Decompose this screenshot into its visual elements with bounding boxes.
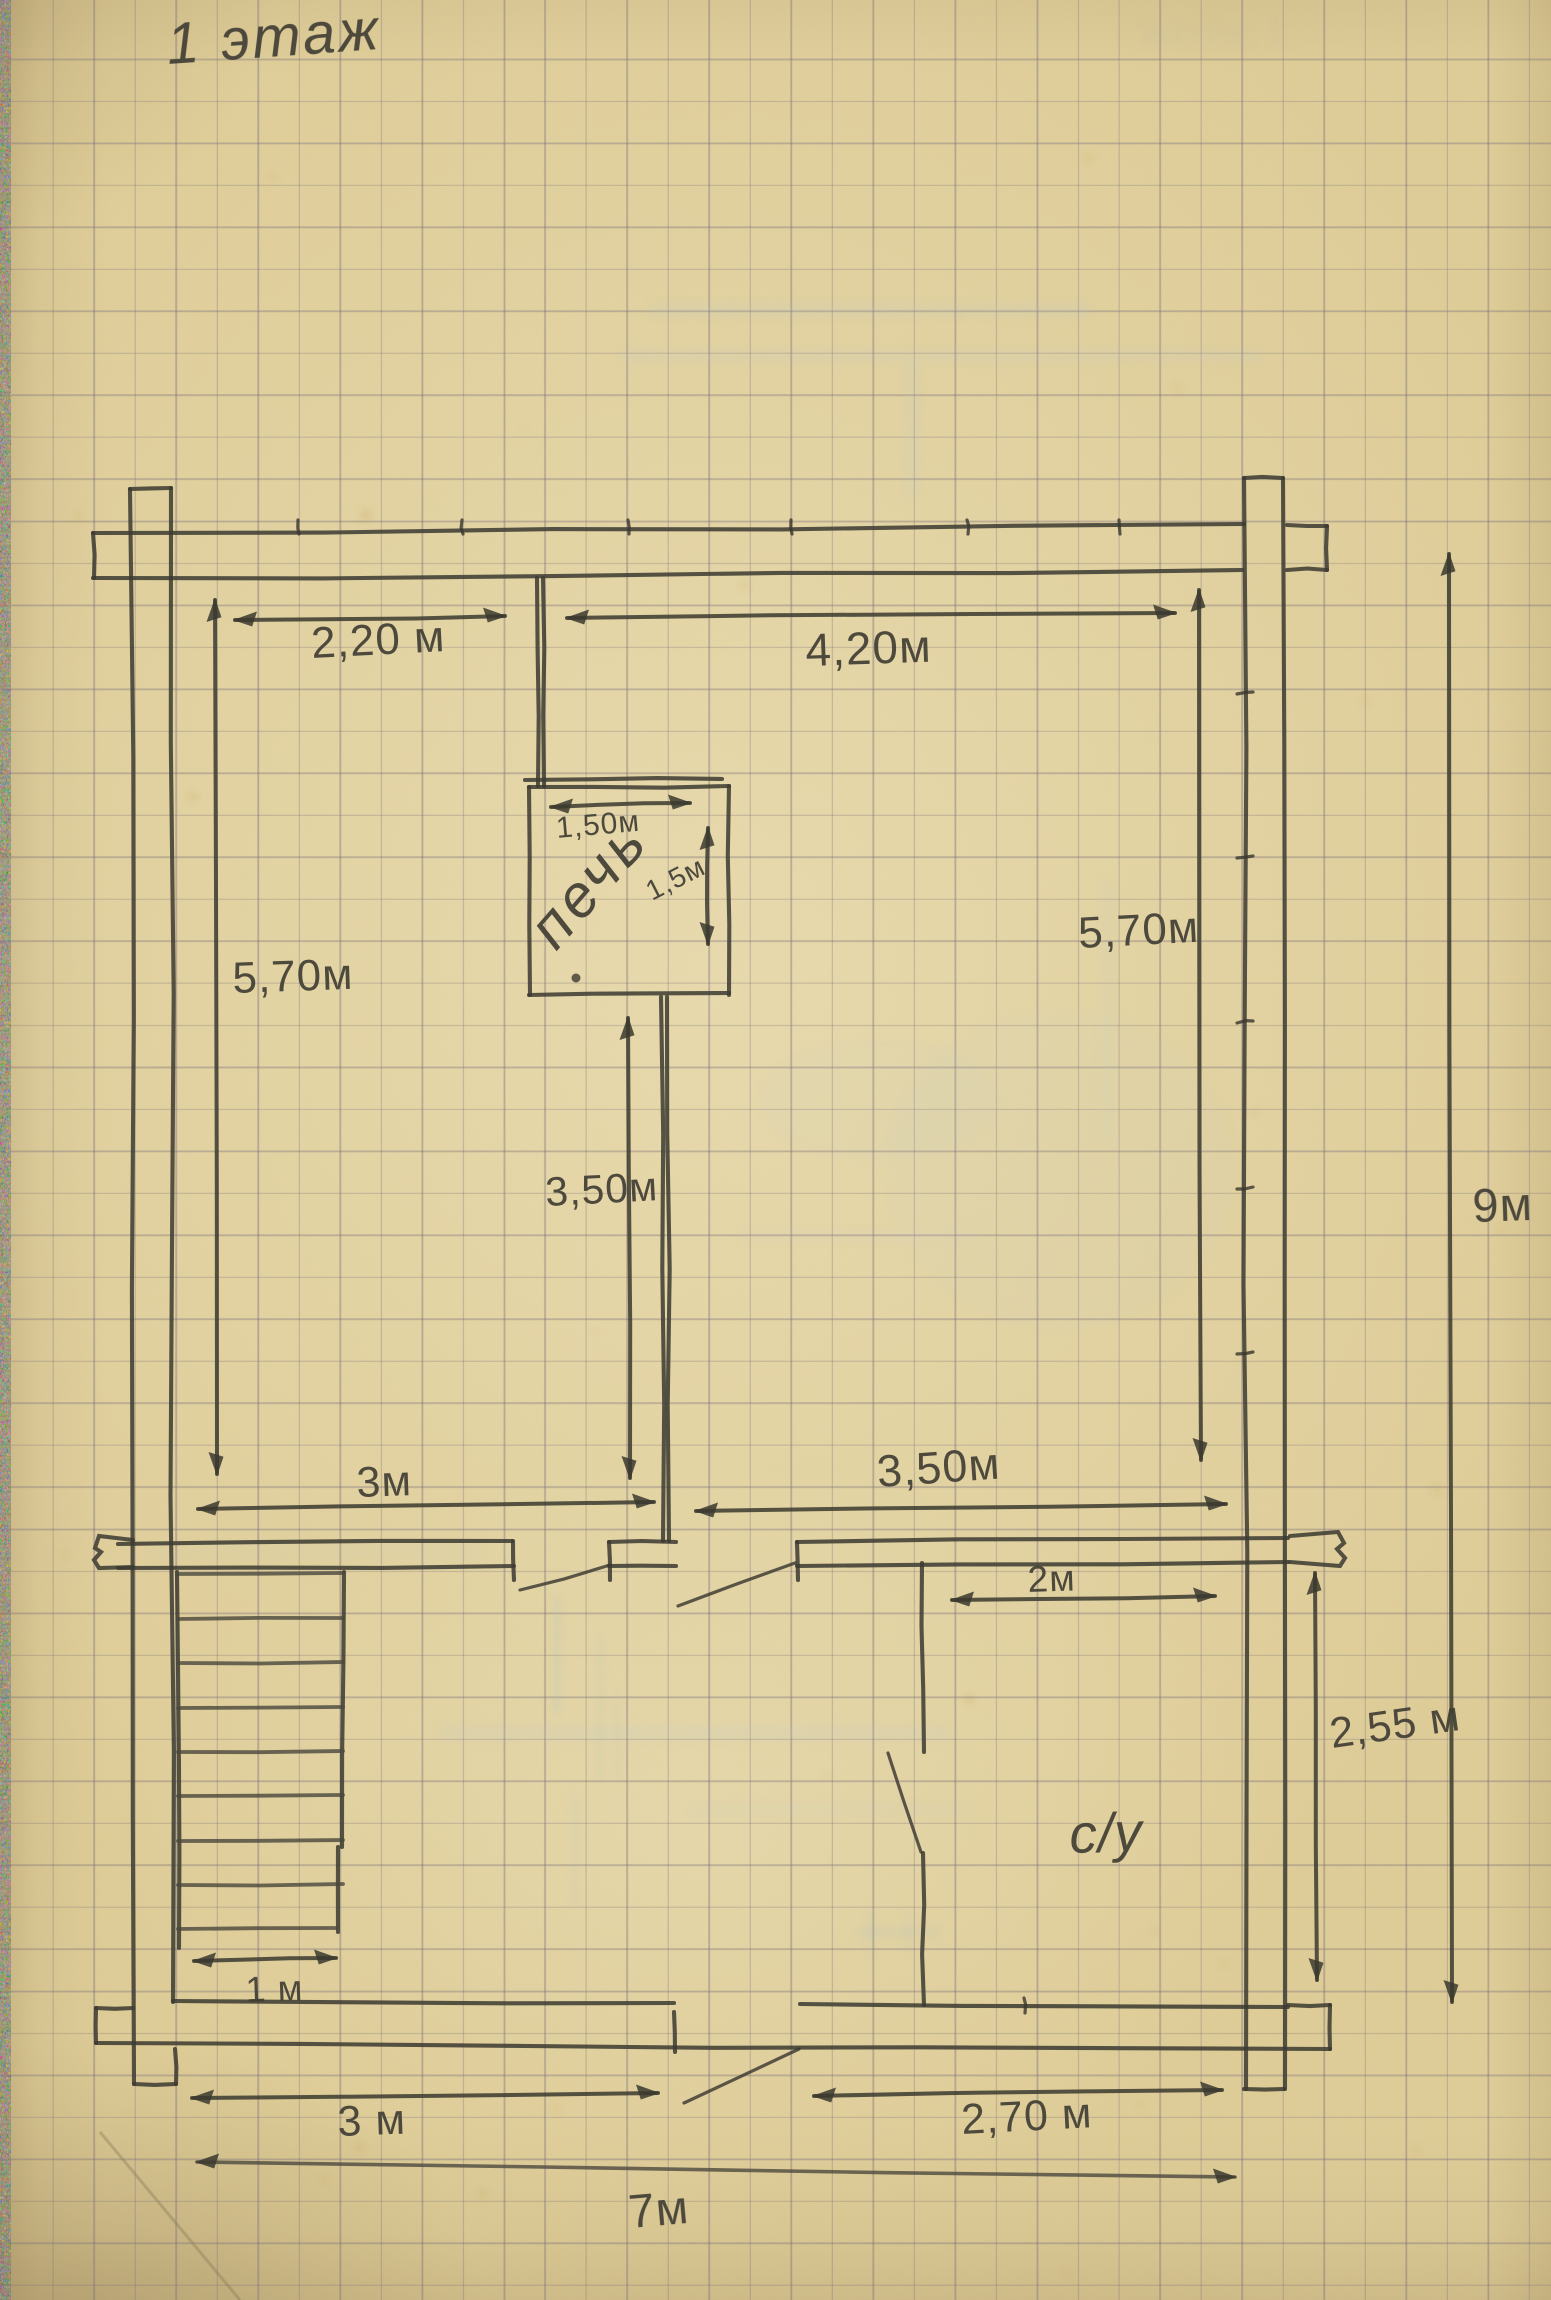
svg-text:1 м: 1 м: [245, 1967, 304, 2010]
svg-text:3,50м: 3,50м: [875, 1437, 1002, 1496]
svg-text:2,70 м: 2,70 м: [960, 2089, 1094, 2144]
svg-text:с/у: с/у: [1068, 1800, 1146, 1865]
svg-text:3 м: 3 м: [337, 2096, 407, 2146]
svg-text:5,70м: 5,70м: [1077, 903, 1200, 958]
svg-text:1 этаж: 1 этаж: [1139, 7, 1290, 56]
svg-text:3,50м: 3,50м: [544, 1163, 659, 1215]
svg-text:2,20 м: 2,20 м: [310, 612, 447, 668]
svg-text:4,20м: 4,20м: [805, 620, 933, 676]
svg-text:5,70м: 5,70м: [232, 950, 355, 1003]
svg-text:9м: 9м: [1471, 1177, 1533, 1232]
svg-text:3м: 3м: [356, 1457, 413, 1507]
svg-text:7м: 7м: [626, 2180, 691, 2238]
svg-text:2м: 2м: [1027, 1557, 1076, 1600]
